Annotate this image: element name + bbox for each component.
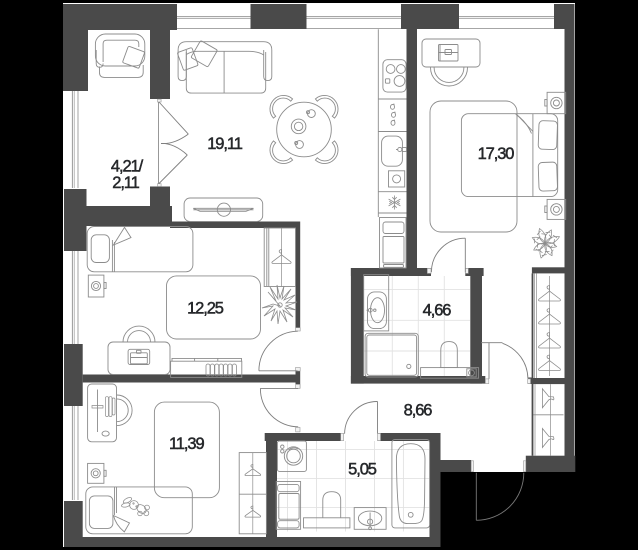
svg-text:11,39: 11,39 xyxy=(169,435,204,453)
svg-text:5,05: 5,05 xyxy=(348,461,377,479)
svg-text:8,66: 8,66 xyxy=(404,402,433,420)
svg-text:17,30: 17,30 xyxy=(478,145,515,163)
svg-text:4,21/: 4,21/ xyxy=(111,158,144,176)
svg-text:4,66: 4,66 xyxy=(423,302,452,320)
svg-text:19,11: 19,11 xyxy=(207,135,242,153)
svg-text:2,11: 2,11 xyxy=(112,174,139,192)
svg-text:12,25: 12,25 xyxy=(187,299,224,317)
